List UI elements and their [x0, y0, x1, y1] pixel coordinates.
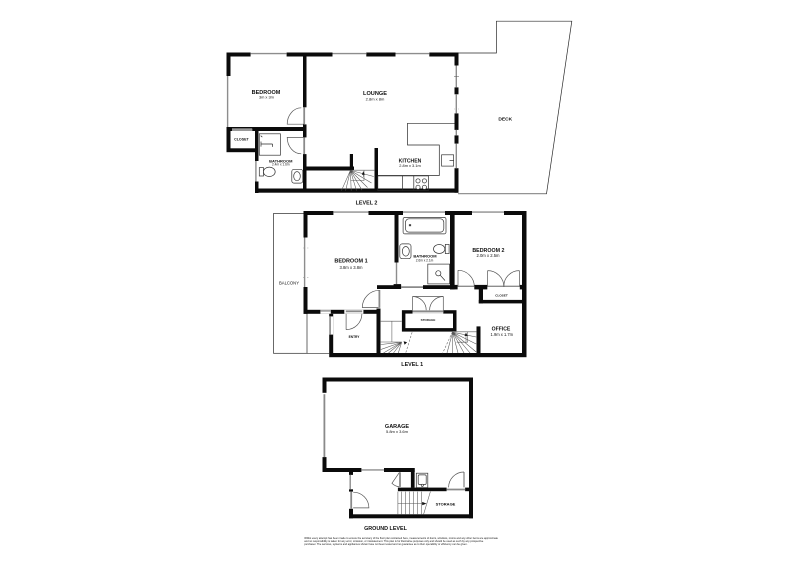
svg-text:5.8m x 3.6m: 5.8m x 3.6m [386, 429, 409, 434]
svg-text:LEVEL 2: LEVEL 2 [356, 201, 378, 207]
svg-text:ENTRY: ENTRY [349, 335, 361, 339]
svg-text:GROUND LEVEL: GROUND LEVEL [364, 526, 408, 532]
svg-text:CLOSET: CLOSET [234, 138, 249, 142]
svg-text:3.8m x 3.8m: 3.8m x 3.8m [339, 265, 363, 270]
svg-text:LEVEL 1: LEVEL 1 [401, 362, 423, 368]
svg-text:2.0m x 2.5m: 2.0m x 2.5m [476, 253, 500, 258]
svg-text:2.8m x 3.1m: 2.8m x 3.1m [399, 163, 420, 168]
svg-text:CLOSET: CLOSET [495, 294, 508, 298]
svg-text:3m x 3m: 3m x 3m [259, 95, 274, 100]
svg-text:1.9m x 1.7m: 1.9m x 1.7m [491, 332, 514, 337]
svg-text:STORAGE: STORAGE [436, 501, 456, 506]
svg-text:BALCONY: BALCONY [279, 281, 299, 286]
svg-text:2.8m x 8m: 2.8m x 8m [366, 97, 385, 102]
svg-text:STORAGE: STORAGE [421, 318, 436, 322]
svg-text:2.6m x 2.1m: 2.6m x 2.1m [416, 258, 434, 262]
svg-text:DECK: DECK [498, 117, 512, 123]
svg-text:BEDROOM 1: BEDROOM 1 [334, 259, 367, 265]
svg-text:2.4m x 1.6m: 2.4m x 1.6m [272, 163, 290, 167]
svg-text:purchaser. The services, syste: purchaser. The services, systems and app… [304, 542, 467, 546]
